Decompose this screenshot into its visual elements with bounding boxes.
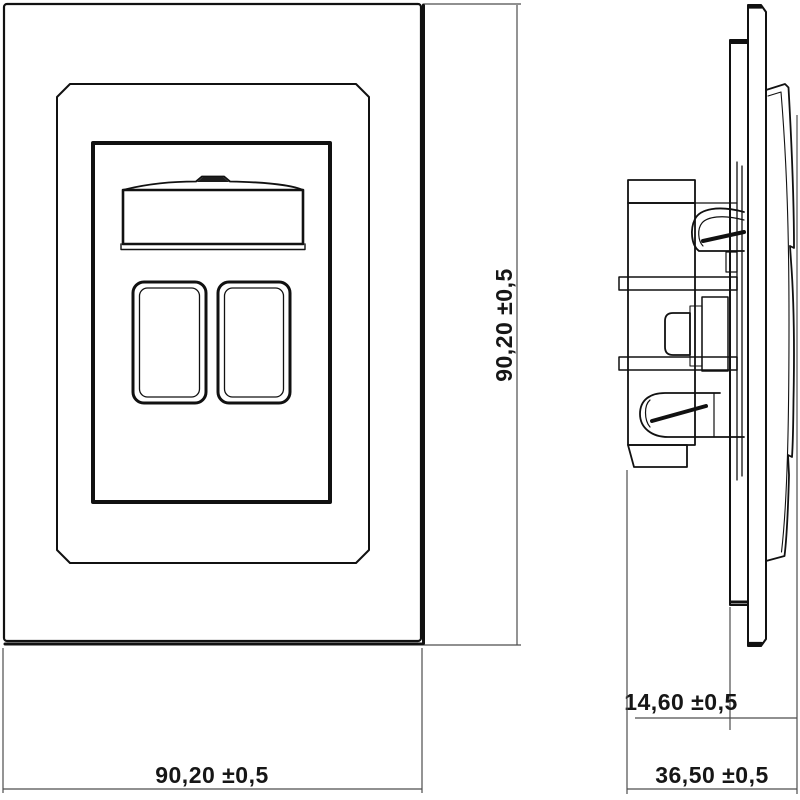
dim-front-height: 90,20 ±0,5 <box>424 4 521 645</box>
dim-front-width-label: 90,20 ±0,5 <box>155 762 269 788</box>
module-face <box>93 143 330 502</box>
outer-plate-edge <box>5 5 424 644</box>
dim-side-total-depth-label: 36,50 ±0,5 <box>655 762 769 788</box>
frame-profile-inner-line <box>768 92 789 552</box>
technical-drawing-page: 90,20 ±0,5 90,20 ±0,5 14,60 ±0,5 36,50 ±… <box>0 0 800 800</box>
keystone-slot-left <box>133 282 206 403</box>
dim-side-front-depth-label: 14,60 ±0,5 <box>624 689 738 715</box>
mounting-claw-bottom <box>640 393 744 437</box>
frame-opening <box>57 84 369 563</box>
keystone-slot-right <box>218 282 290 403</box>
dimensions: 90,20 ±0,5 90,20 ±0,5 14,60 ±0,5 36,50 ±… <box>3 4 797 794</box>
side-view <box>619 5 794 646</box>
front-view <box>4 4 424 644</box>
mounting-claw-top <box>692 208 744 251</box>
support-nub <box>726 252 737 272</box>
mechanism-cap <box>628 180 695 203</box>
label-window <box>123 190 303 244</box>
cover-plate-caps <box>749 7 762 644</box>
keystone-slot-right-inner <box>225 288 284 397</box>
support-band-top <box>619 277 737 290</box>
frame-profile-side <box>766 84 794 561</box>
mechanism-foot <box>628 445 687 467</box>
adapter-plate-caps <box>731 43 747 603</box>
dim-side-front-depth: 14,60 ±0,5 <box>624 607 797 730</box>
dim-front-width: 90,20 ±0,5 <box>3 648 422 793</box>
fixing-screw-head <box>665 313 690 355</box>
keystone-slot-left-inner <box>140 288 200 397</box>
adapter-plate-side <box>730 40 748 605</box>
drawing-svg: 90,20 ±0,5 90,20 ±0,5 14,60 ±0,5 36,50 ±… <box>0 0 800 800</box>
dim-front-height-label: 90,20 ±0,5 <box>491 268 517 382</box>
mechanism-body <box>628 203 695 445</box>
support-band-bottom <box>619 357 737 370</box>
cover-plate-side <box>748 5 766 646</box>
outer-plate <box>4 4 421 641</box>
fixing-screw-housing <box>702 297 728 371</box>
